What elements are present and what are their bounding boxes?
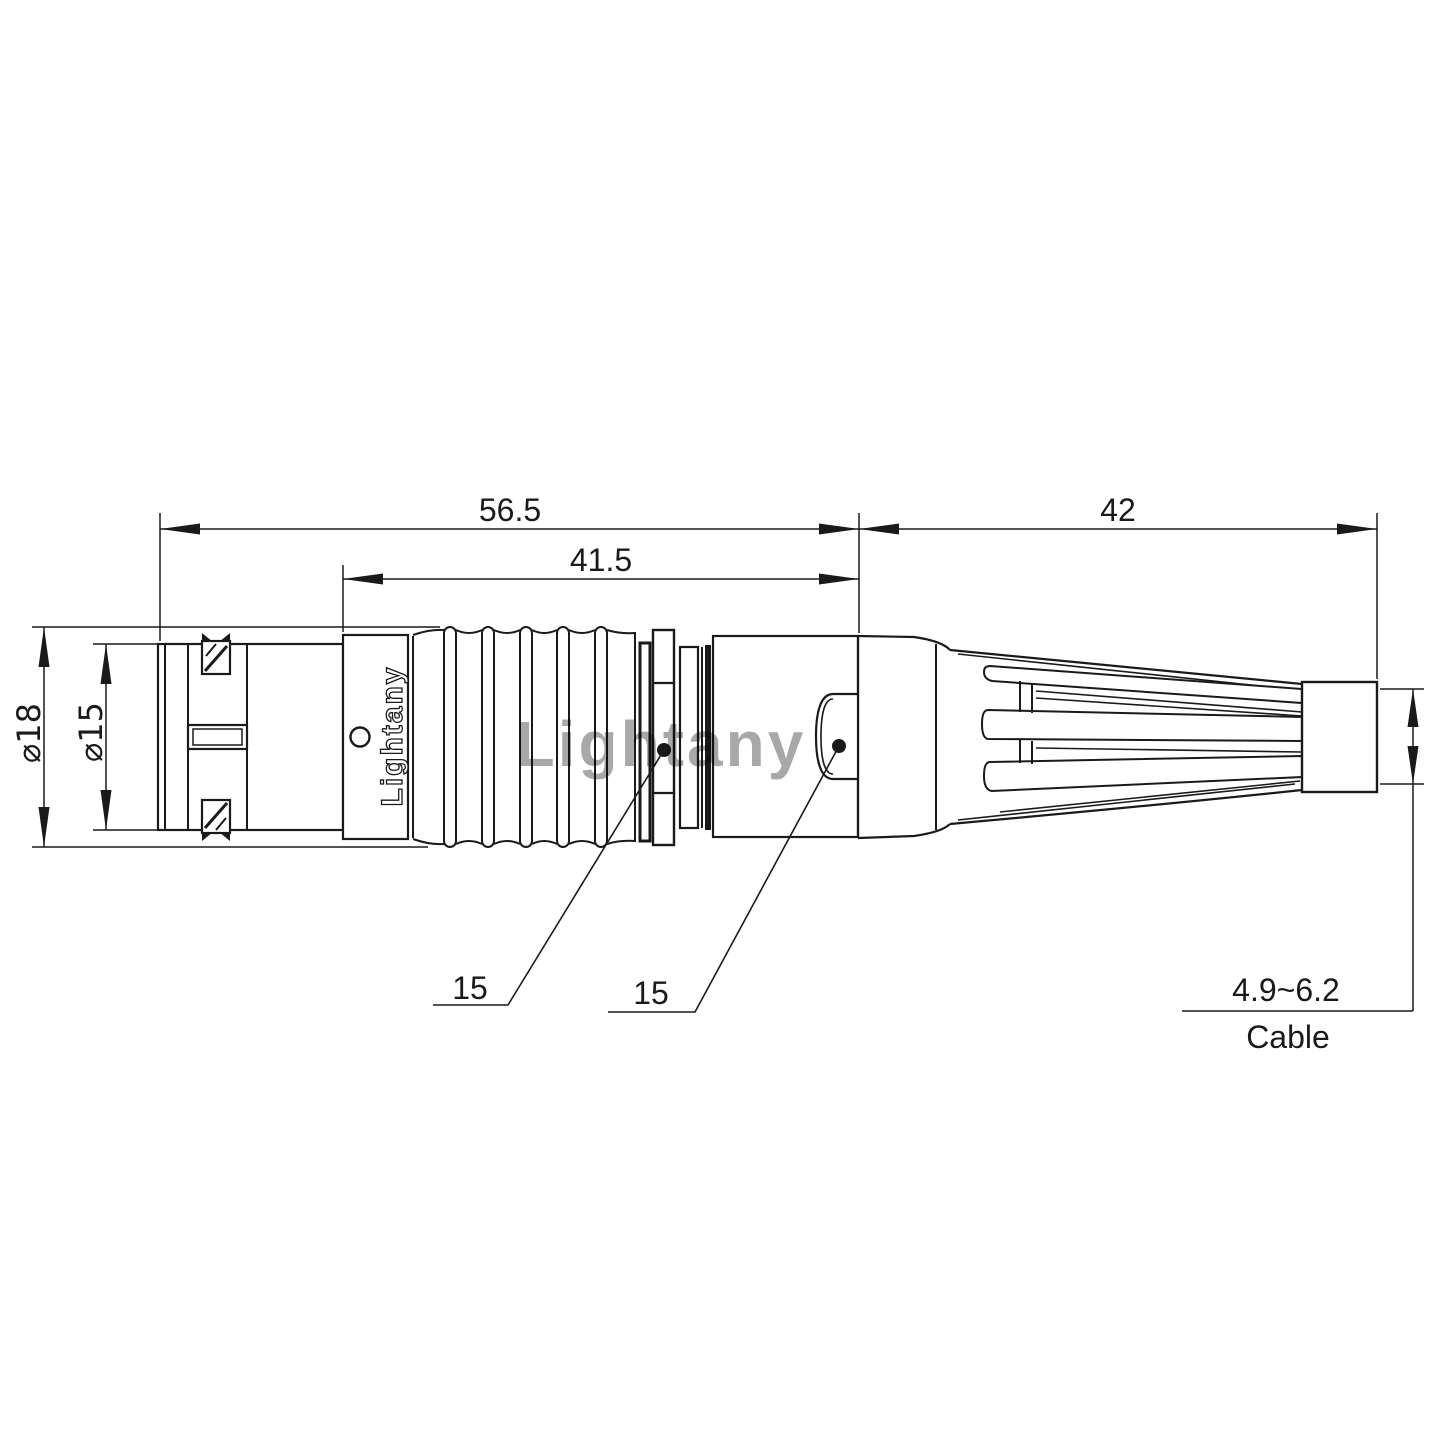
key-tab (202, 633, 213, 642)
connector-drawing: Lightany (0, 0, 1440, 1440)
rib-lead-bottom (413, 839, 444, 844)
dimension-value: 41.5 (570, 542, 632, 578)
back-fin-line (1036, 748, 1302, 752)
dimension-front-diameter: ⌀15 (72, 644, 112, 830)
boot-cone-bottom (950, 790, 1302, 824)
logo-dot-icon (351, 728, 370, 747)
dimension-value: ⌀15 (72, 702, 110, 762)
plug-outline (158, 644, 343, 830)
strain-relief-boot (858, 636, 1302, 838)
dimension-value: ⌀18 (10, 703, 48, 763)
dimension-value: 56.5 (479, 492, 541, 528)
release-window (816, 694, 858, 779)
dimension-arrow (819, 524, 859, 535)
dimension-arrow (101, 790, 112, 830)
technical-drawing-page: Lightany (0, 0, 1440, 1440)
cable-range-value: 4.9~6.2 (1232, 972, 1340, 1008)
dimension-arrow (1408, 689, 1419, 727)
key-tab (202, 832, 213, 841)
dimension-arrow (39, 807, 50, 847)
dimension-overall-length: 56.5 (160, 492, 859, 535)
grip-section: Lightany (343, 635, 413, 839)
rib (444, 627, 456, 847)
watermark-text: Lightany (516, 708, 807, 780)
dimension-arrow (1408, 746, 1419, 784)
body-logo-text: Lightany (376, 666, 409, 807)
dimension-cable: 4.9~6.2 Cable (1182, 689, 1419, 1055)
cable-label: Cable (1246, 1019, 1330, 1055)
dimension-arrow (1337, 524, 1377, 535)
dimension-outer-diameter: ⌀18 (10, 627, 50, 847)
dimension-arrow (343, 574, 383, 585)
rib (482, 627, 494, 847)
plug-section (158, 633, 343, 841)
callout-value: 15 (452, 970, 488, 1006)
key-tab (219, 832, 230, 841)
rib-lead-top (413, 630, 444, 635)
dimension-value: 42 (1100, 492, 1136, 528)
cable-end-cap (1302, 682, 1377, 792)
dimension-arrow (101, 644, 112, 684)
dimension-boot-length: 42 (859, 492, 1377, 535)
dimension-arrow (39, 627, 50, 667)
key-tab (219, 633, 230, 642)
dimension-arrow (859, 524, 899, 535)
dimension-arrow (819, 574, 859, 585)
dimension-arrow (160, 524, 200, 535)
leader-line (433, 750, 664, 1005)
boot-fin (982, 710, 1302, 741)
callout-value: 15 (633, 975, 669, 1011)
dimension-grip-length: 41.5 (343, 542, 859, 585)
